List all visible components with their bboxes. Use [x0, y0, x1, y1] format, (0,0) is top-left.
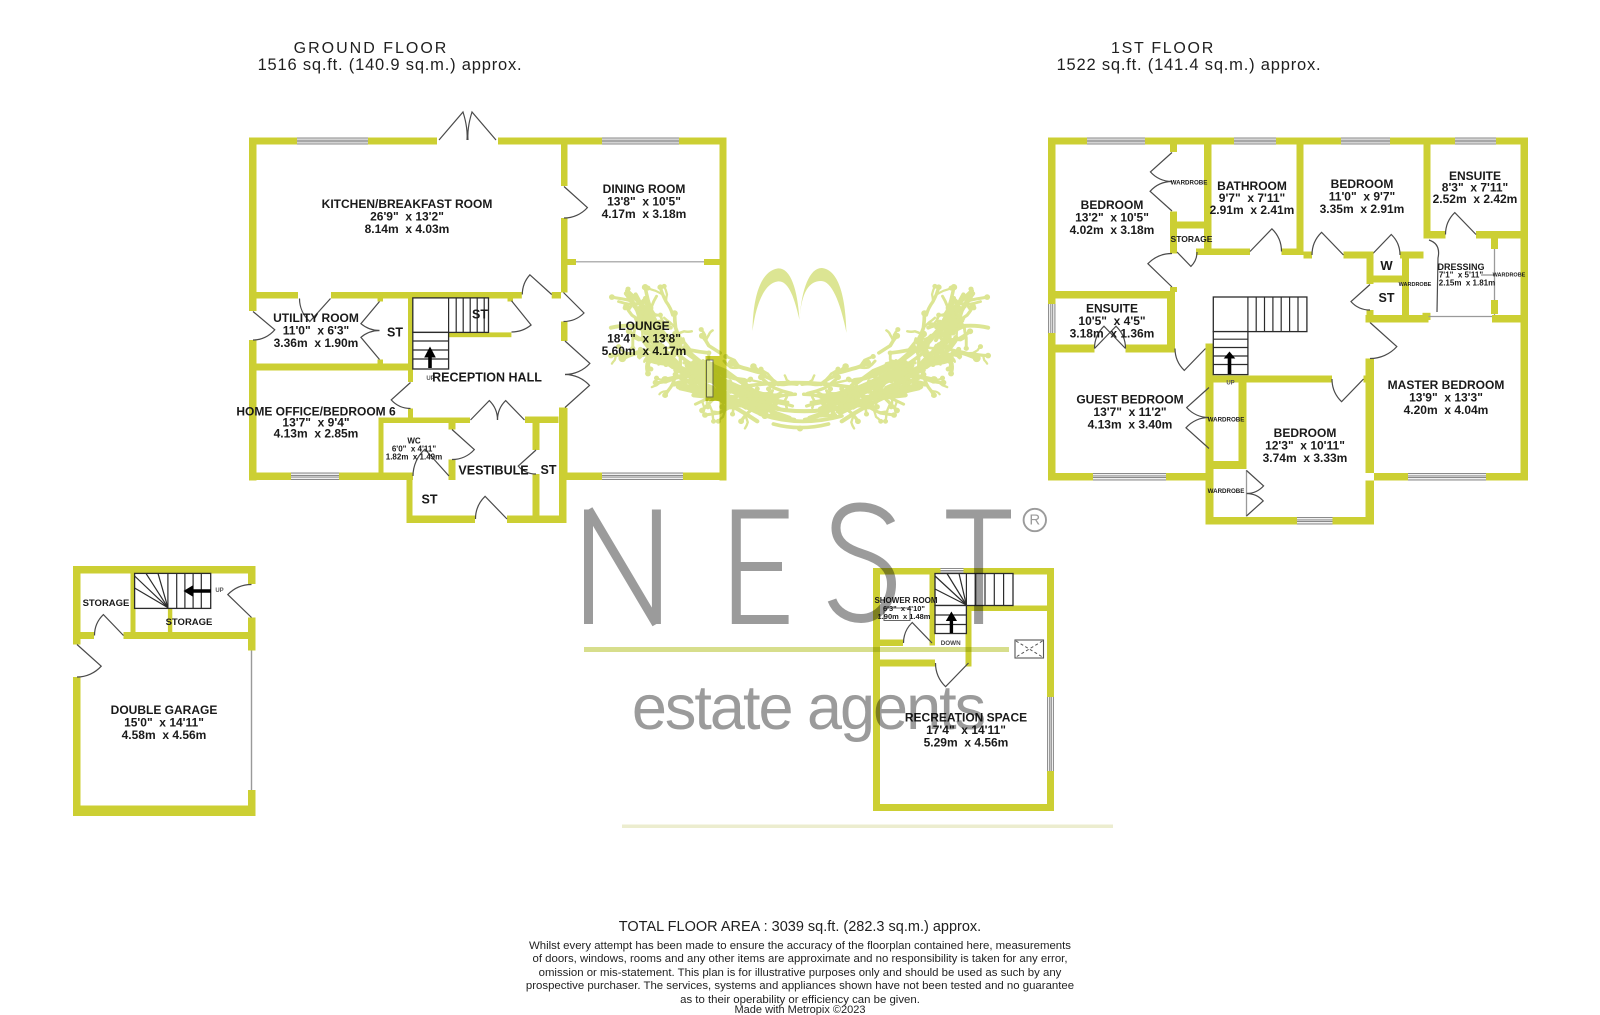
- svg-text:estate agents: estate agents: [632, 673, 985, 743]
- svg-text:R: R: [1029, 512, 1040, 529]
